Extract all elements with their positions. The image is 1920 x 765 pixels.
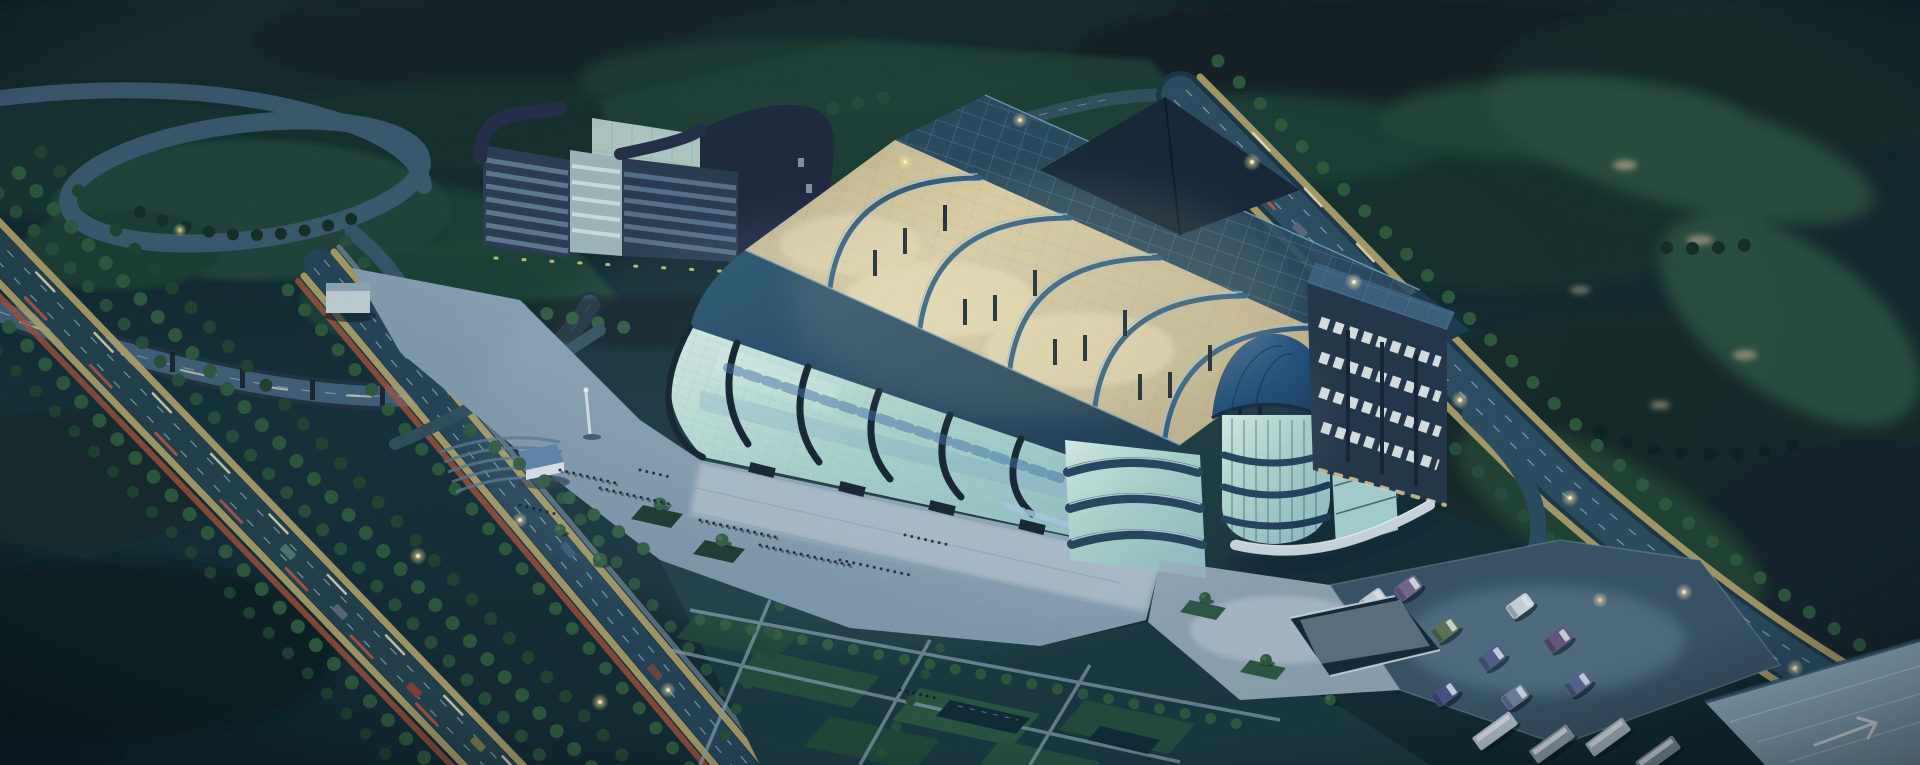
atmosphere-overlays: [0, 0, 1920, 765]
architectural-rendering-scene: [0, 0, 1920, 765]
vignette: [0, 0, 1920, 765]
rendered-image: [0, 0, 1920, 765]
